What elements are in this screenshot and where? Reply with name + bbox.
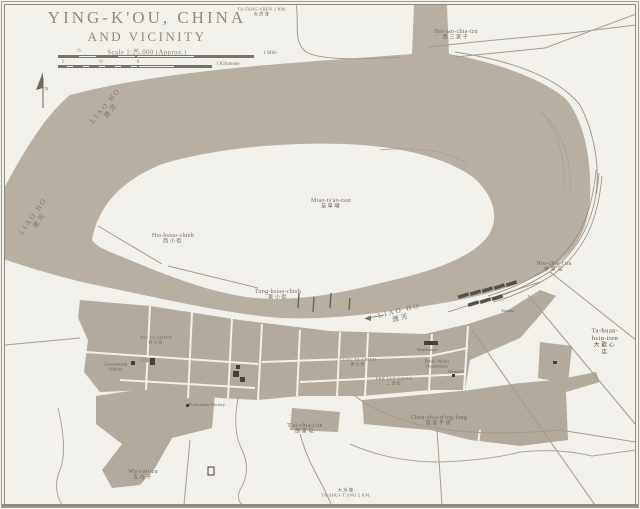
scale-segment bbox=[58, 65, 66, 68]
hospital-label: Hospital bbox=[448, 370, 464, 375]
ta-huan-hsin-tien-label: Ta-huan-hsin-tien大歡心店 bbox=[590, 327, 619, 356]
public-works-department-label: Public Works Department bbox=[425, 359, 450, 369]
chou-chia-ping-fang-chinese-text: 周家平房 bbox=[411, 420, 468, 426]
hsi-hsiao-chieh-chinese-text: 西小街 bbox=[152, 238, 194, 244]
tai-chia-tun-label: T'ai-chia-t'un邰家屯 bbox=[287, 422, 323, 435]
ta-huan-hsin-tien-chinese-text: 大歡心店 bbox=[590, 342, 619, 356]
bottom-edge-line bbox=[2, 504, 638, 507]
scale-tick-label: 0 bbox=[135, 48, 137, 54]
miao-tsao-tsui-label: Miao-ts'ao-tsui苗草嘴 bbox=[311, 197, 351, 210]
map-subtitle: AND VICINITY bbox=[38, 29, 256, 45]
map-sheet: YING-K'OU, CHINA AND VICINITY Scale 1:25… bbox=[0, 0, 640, 509]
scale-tick-label: 1 bbox=[62, 59, 64, 65]
scale-segment bbox=[66, 65, 74, 68]
erh-tao-chieh-chinese-text: 二道街 bbox=[376, 381, 413, 386]
scale-segment bbox=[130, 65, 138, 68]
erh-tao-chieh-label: ERH TAO CHIEH二道街 bbox=[376, 376, 413, 385]
tung-ta-chieh-chinese-text: 東大街 bbox=[340, 362, 377, 367]
scale-end-label: 1 Mile bbox=[263, 50, 276, 56]
scale-segment bbox=[175, 65, 212, 68]
tung-hsiao-chieh-label: Tung-hsiao-chieh東小街 bbox=[255, 288, 301, 301]
hsi-san-chia-tzu-chinese-text: 西三家子 bbox=[434, 34, 478, 40]
ta-shui-tang-label: 大水塘TA-SHUI-T'ANG 2 KM. bbox=[321, 488, 371, 498]
kilometer-scale-bar: 1½01 Kilometer bbox=[58, 57, 252, 71]
scale-segment bbox=[90, 65, 98, 68]
scale-end-label: 1 Kilometer bbox=[216, 61, 240, 67]
scale-tick-label: ½ bbox=[99, 59, 103, 65]
public-works-department-roman-text: Public Works Department bbox=[425, 359, 450, 369]
niu-chia-tun-chinese-text: 牛家屯 bbox=[536, 266, 571, 272]
scale-tick-label: ½ bbox=[77, 48, 81, 54]
hospital-roman-text: Hospital bbox=[448, 370, 464, 375]
miao-tsao-tsui-chinese-text: 苗草嘴 bbox=[311, 203, 351, 209]
map-title: YING-K'OU, CHINA bbox=[38, 8, 256, 28]
scale-segment bbox=[82, 65, 90, 68]
pond bbox=[140, 358, 150, 363]
tai-chia-tun-chinese-text: 邰家屯 bbox=[287, 428, 323, 434]
compass: N bbox=[33, 68, 55, 114]
ta-huan-hsin-tien-roman-text: Ta-huan-hsin-tien bbox=[590, 327, 619, 342]
hsi-ta-chieh-label: HSI TA CHIEH西大街 bbox=[140, 335, 172, 344]
scale-segment bbox=[74, 65, 82, 68]
scale-segment bbox=[98, 65, 106, 68]
hsi-hsiao-chieh-label: Hsi-hsiao-chieh西小街 bbox=[152, 232, 194, 245]
government-offices-roman-text: Government Offices bbox=[105, 362, 128, 372]
scale-segment bbox=[106, 65, 114, 68]
firecracker-factory-label: Firecracker Factory bbox=[189, 403, 225, 408]
station-roman-text: Station bbox=[501, 309, 514, 314]
chou-chia-ping-fang-label: Chou-chia-p'ing-fang周家平房 bbox=[411, 414, 468, 427]
scale-segment bbox=[114, 65, 122, 68]
ta-shui-tang-roman-text: TA-SHUI-T'ANG 2 KM. bbox=[321, 493, 371, 498]
hsi-san-chia-tzu-label: Hsi-san-chia-tzu西三家子 bbox=[434, 28, 478, 41]
warehouse-label: Warehouse bbox=[417, 348, 437, 353]
scale-segment bbox=[122, 65, 130, 68]
wu-tai-tzu-chinese-text: 五台子 bbox=[128, 474, 158, 480]
tung-ta-chieh-label: TUNG TA CHIEH東大街 bbox=[340, 357, 377, 366]
wu-tai-tzu-label: Wu-t'ai-tzu五台子 bbox=[128, 468, 158, 481]
government-offices-label: Government Offices bbox=[105, 362, 128, 372]
firecracker-factory-roman-text: Firecracker Factory bbox=[189, 403, 225, 408]
scale-segment bbox=[138, 65, 175, 68]
warehouse-roman-text: Warehouse bbox=[417, 348, 437, 353]
north-letter: N bbox=[45, 86, 49, 92]
niu-chia-tun-label: Niu-chia-t'un牛家屯 bbox=[536, 260, 571, 273]
hsi-ta-chieh-chinese-text: 西大街 bbox=[140, 340, 172, 345]
station-label: Station bbox=[501, 309, 514, 314]
scale-tick-label: 0 bbox=[137, 59, 139, 65]
tung-hsiao-chieh-chinese-text: 東小街 bbox=[255, 294, 301, 300]
